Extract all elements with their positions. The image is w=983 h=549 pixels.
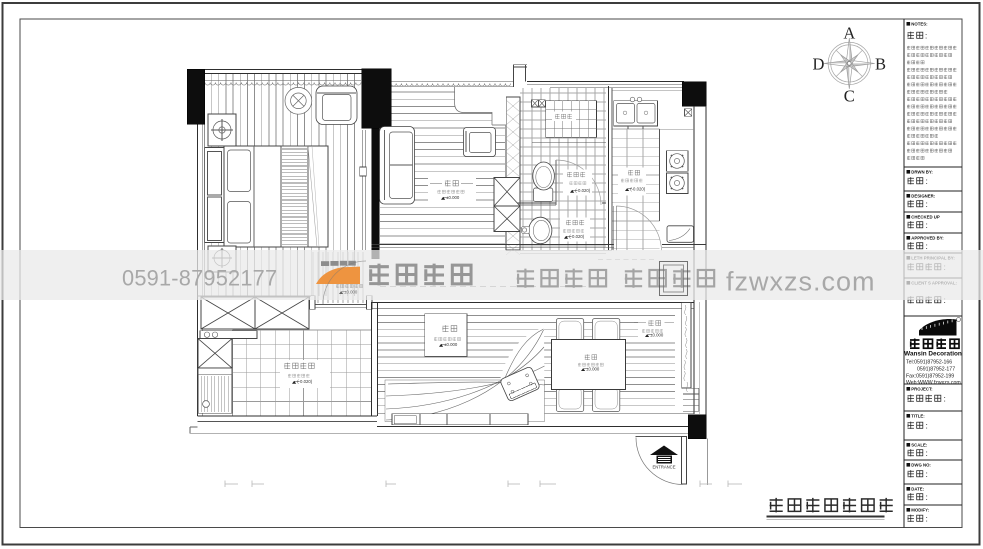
svg-text::: : — [926, 448, 928, 458]
svg-text:APPROVED BY:: APPROVED BY: — [911, 236, 944, 241]
svg-text:±0.000: ±0.000 — [444, 342, 458, 347]
svg-text:NOTES:: NOTES: — [911, 22, 928, 27]
svg-text:Web:WWW.fzwxzs.com: Web:WWW.fzwxzs.com — [906, 380, 961, 386]
svg-text::: : — [944, 394, 946, 404]
svg-text:±0.000: ±0.000 — [586, 366, 600, 371]
svg-text::: : — [925, 32, 927, 41]
svg-text:0591)87952-177: 0591)87952-177 — [917, 367, 955, 373]
svg-text:SCALE:: SCALE: — [911, 443, 928, 448]
svg-text:(-0.020): (-0.020) — [575, 188, 591, 193]
svg-text::: : — [926, 220, 928, 230]
svg-text:DATE:: DATE: — [911, 487, 924, 492]
svg-text::: : — [926, 421, 928, 431]
svg-text:TITLE:: TITLE: — [911, 414, 925, 419]
svg-text::: : — [926, 199, 928, 209]
svg-text:A: A — [843, 23, 855, 42]
svg-text:(-0.020): (-0.020) — [630, 186, 646, 191]
svg-text:CHECKED UP: CHECKED UP — [911, 215, 940, 220]
svg-text::: : — [926, 514, 928, 524]
svg-text:±0.000: ±0.000 — [650, 332, 664, 337]
svg-text:Tel:0591)87952-166: Tel:0591)87952-166 — [906, 360, 952, 366]
svg-text::: : — [926, 241, 928, 251]
svg-text::: : — [926, 492, 928, 502]
svg-text:fzwxzs.com: fzwxzs.com — [726, 267, 876, 297]
svg-text::: : — [926, 176, 928, 186]
svg-text:DRWN BY:: DRWN BY: — [911, 170, 933, 175]
svg-text:0591-87952177: 0591-87952177 — [122, 266, 277, 291]
svg-text:DWG NO:: DWG NO: — [911, 463, 931, 468]
svg-text:Fax:0591)87952-199: Fax:0591)87952-199 — [906, 374, 954, 380]
svg-text:±0.000: ±0.000 — [344, 289, 358, 294]
svg-text:D: D — [813, 54, 825, 73]
svg-text:B: B — [875, 54, 886, 73]
svg-text:ENTRANCE: ENTRANCE — [652, 465, 675, 470]
svg-text:MODIFY:: MODIFY: — [911, 508, 929, 513]
svg-text:DESIGNER:: DESIGNER: — [911, 194, 935, 199]
svg-text:C: C — [844, 87, 855, 106]
svg-text:PROJECT:: PROJECT: — [911, 387, 933, 392]
svg-text:(-0.020): (-0.020) — [297, 379, 313, 384]
svg-text:±0.000: ±0.000 — [446, 195, 460, 200]
svg-text:Wansin Decoration: Wansin Decoration — [904, 351, 962, 358]
svg-text::: : — [926, 469, 928, 479]
svg-text:(-0.020): (-0.020) — [569, 234, 585, 239]
